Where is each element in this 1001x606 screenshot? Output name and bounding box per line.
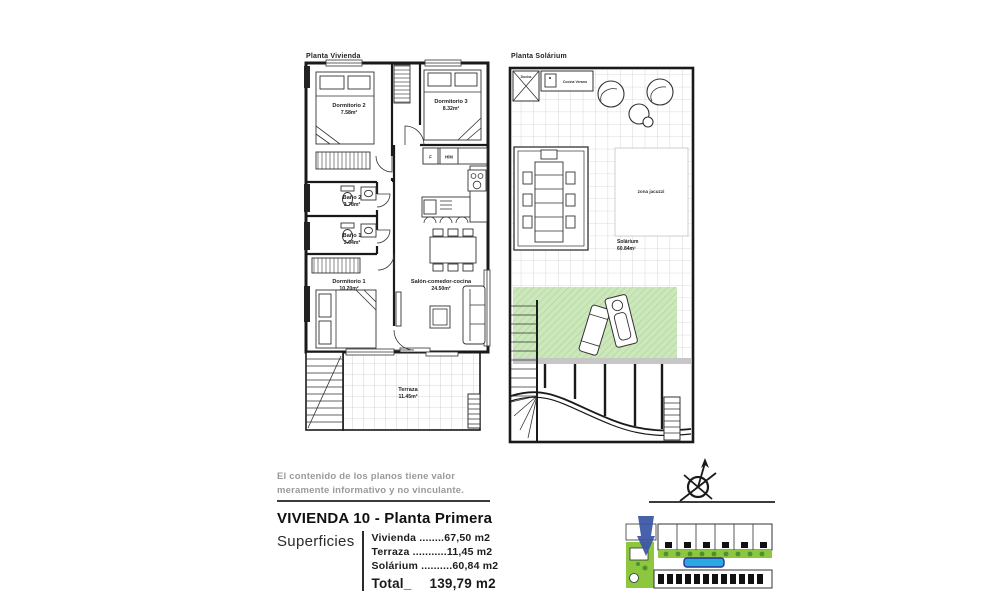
sink-icon: [365, 227, 373, 233]
dining-table-icon: [430, 229, 476, 271]
total-row: Total_139,79 m2: [372, 576, 499, 591]
surfaces-list: Vivienda ........67,50 m2 Terraza ......…: [372, 531, 499, 591]
shaft-icon: [394, 65, 410, 103]
room-label: Salón-comedor-cocina: [411, 279, 472, 285]
room-area: 3.64m²: [344, 240, 361, 246]
fridge-label: F: [429, 155, 432, 160]
outdoor-dining-set: [514, 147, 588, 250]
shower-label: Ducha: [521, 75, 532, 79]
room-label: Dormitorio 2: [332, 103, 365, 109]
garden-strip: [658, 550, 772, 558]
room-area: 10.20m²: [339, 286, 359, 292]
room-area: 24.50m²: [431, 286, 451, 292]
pocket-door-icon: [396, 292, 401, 326]
disclaimer: El contenido de los planos tiene valor m…: [277, 470, 507, 498]
floorplan-sheet: Planta Vivienda: [0, 0, 1001, 606]
kitchen-sink-icon: [545, 74, 556, 87]
chair-icon: [566, 172, 575, 184]
chair-icon: [523, 194, 532, 206]
sink-icon: [365, 190, 373, 196]
disclaimer-line1: El contenido de los planos tiene valor: [277, 470, 507, 484]
pool-icon: [658, 558, 772, 568]
sliding-door-icon: [426, 352, 458, 356]
solarium-name: Solárium: [617, 239, 639, 245]
page-title: VIVIENDA 10 - Planta Primera: [277, 510, 507, 527]
room-label: Baño 1: [343, 233, 362, 239]
room-area: 7.58m²: [341, 110, 358, 116]
summer-kitchen: Cocina Verano: [541, 71, 593, 91]
ladder-icon: [664, 397, 680, 440]
jacuzzi-label: zona jacuzzi: [638, 189, 665, 194]
table-icon: [535, 162, 563, 242]
surface-row: Terraza ...........11,45 m2: [372, 545, 499, 559]
divider: [362, 531, 364, 591]
room-area: 11.45m²: [398, 394, 417, 400]
top-units-row: [658, 524, 772, 550]
stools-icon: [424, 217, 468, 223]
coffee-table-icon: [430, 306, 450, 328]
stove-icon: [468, 170, 486, 191]
chair-icon: [566, 216, 575, 228]
jacuzzi-zone: zona jacuzzi: [615, 148, 688, 236]
staircase-icon: [306, 352, 343, 430]
room-label: Dormitorio 1: [332, 279, 365, 285]
summer-kitchen-label: Cocina Verano: [563, 80, 587, 84]
divider-line: [277, 500, 490, 502]
room-label: Baño 2: [343, 195, 362, 201]
breakfast-bar: [422, 197, 470, 223]
room-area: 8.32m²: [443, 106, 460, 112]
bed-dormitorio1-icon: [316, 290, 376, 348]
oven-label: H/M: [445, 155, 453, 160]
chair-icon: [566, 194, 575, 206]
chair-icon: [523, 216, 532, 228]
surface-row: Solárium ..........60,84 m2: [372, 559, 499, 573]
shower-icon: Ducha: [513, 71, 539, 101]
surfaces-label: Superficies: [277, 531, 355, 591]
solarium-area: 60.84m²: [617, 246, 636, 252]
surface-row: Vivienda ........67,50 m2: [372, 531, 499, 545]
disclaimer-line2: meramente informativo y no vinculante.: [277, 484, 507, 498]
chair-icon: [523, 172, 532, 184]
room-label: Dormitorio 3: [434, 99, 467, 105]
room-label: Terraza: [398, 387, 418, 393]
sofa-icon: [463, 286, 485, 344]
bar-sink-icon: [424, 200, 436, 214]
bottom-units-row: [654, 570, 772, 588]
room-area: 3.78m²: [344, 202, 361, 208]
posts: [545, 364, 662, 429]
shadow-band: [513, 358, 691, 364]
plan-solarium-title: Planta Solárium: [511, 53, 567, 60]
chair-icon: [541, 150, 557, 159]
title-block: VIVIENDA 10 - Planta Primera Superficies…: [277, 510, 507, 591]
plan-solarium: Planta Solárium Ducha Cocina Verano: [505, 45, 705, 460]
plan-vivienda: Planta Vivienda: [300, 45, 500, 460]
compass-icon: [672, 455, 726, 509]
bed-dormitorio3-icon: [424, 70, 481, 140]
plan-vivienda-title: Planta Vivienda: [306, 53, 361, 60]
siteplan-minimap: [624, 516, 776, 596]
